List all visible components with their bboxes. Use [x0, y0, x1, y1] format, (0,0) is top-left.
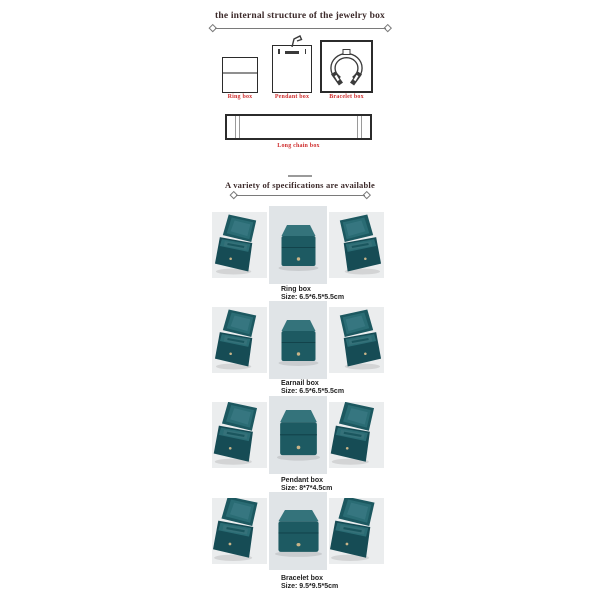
spec-title-underline: [231, 192, 369, 198]
ring-slot-line: [223, 72, 257, 74]
product-photo-row: [212, 206, 384, 284]
closed-box-photo: [269, 492, 327, 570]
product-size: Size: 9.5*9.5*5cm: [281, 583, 391, 591]
bracelet-box-diagram-label: Bracelet box: [320, 94, 373, 100]
product-name: Pendant box: [281, 477, 391, 485]
product-label: Pendant box Size: 8*7*4.5cm: [281, 477, 391, 493]
open-box-photo-right: [329, 402, 384, 468]
section-divider-dash: [288, 175, 312, 177]
chain-divider-line: [357, 116, 358, 138]
open-box-photo-right: [329, 212, 384, 278]
closed-box-photo: [269, 396, 327, 474]
bracelet-box-diagram-icon: [320, 40, 373, 93]
pendant-hook-icon: [289, 35, 303, 47]
pendant-tick-left: [278, 49, 280, 54]
open-box-photo-right: [329, 498, 384, 564]
title-underline: [210, 25, 390, 31]
open-box-photo-left: [212, 402, 267, 468]
chain-divider-line: [361, 116, 362, 138]
product-name: Earnail box: [281, 380, 391, 388]
spec-section-title: A variety of specifications are availabl…: [0, 180, 600, 190]
product-photo-row: [212, 492, 384, 570]
open-box-photo-left: [212, 307, 267, 373]
page-title: the internal structure of the jewelry bo…: [0, 11, 600, 21]
open-box-photo-left: [212, 498, 267, 564]
ring-box-diagram-label: Ring box: [214, 94, 266, 100]
long-chain-box-diagram-icon: [225, 114, 372, 140]
closed-box-photo: [269, 301, 327, 379]
product-photo-row: [212, 301, 384, 379]
jewelry-box-infographic: the internal structure of the jewelry bo…: [0, 0, 600, 600]
open-box-photo-left: [212, 212, 267, 278]
closed-box-photo: [269, 206, 327, 284]
open-box-photo-right: [329, 307, 384, 373]
product-name: Bracelet box: [281, 575, 391, 583]
pendant-tick-right: [305, 49, 307, 54]
product-photo-row: [212, 396, 384, 474]
product-label: Earnail box Size: 6.5*6.5*5.5cm: [281, 380, 391, 396]
pendant-box-diagram-label: Pendant box: [266, 94, 318, 100]
pendant-box-diagram-icon: [272, 45, 312, 93]
product-size: Size: 6.5*6.5*5.5cm: [281, 388, 391, 396]
pendant-hanger-bar: [285, 51, 299, 54]
chain-divider-line: [235, 116, 236, 138]
product-label: Bracelet box Size: 9.5*9.5*5cm: [281, 575, 391, 591]
product-name: Ring box: [281, 286, 391, 294]
chain-divider-line: [239, 116, 240, 138]
ring-box-diagram-icon: [222, 57, 258, 93]
product-label: Ring box Size: 6.5*6.5*5.5cm: [281, 286, 391, 302]
long-chain-box-diagram-label: Long chain box: [225, 143, 372, 149]
bangle-icon: [323, 43, 370, 90]
